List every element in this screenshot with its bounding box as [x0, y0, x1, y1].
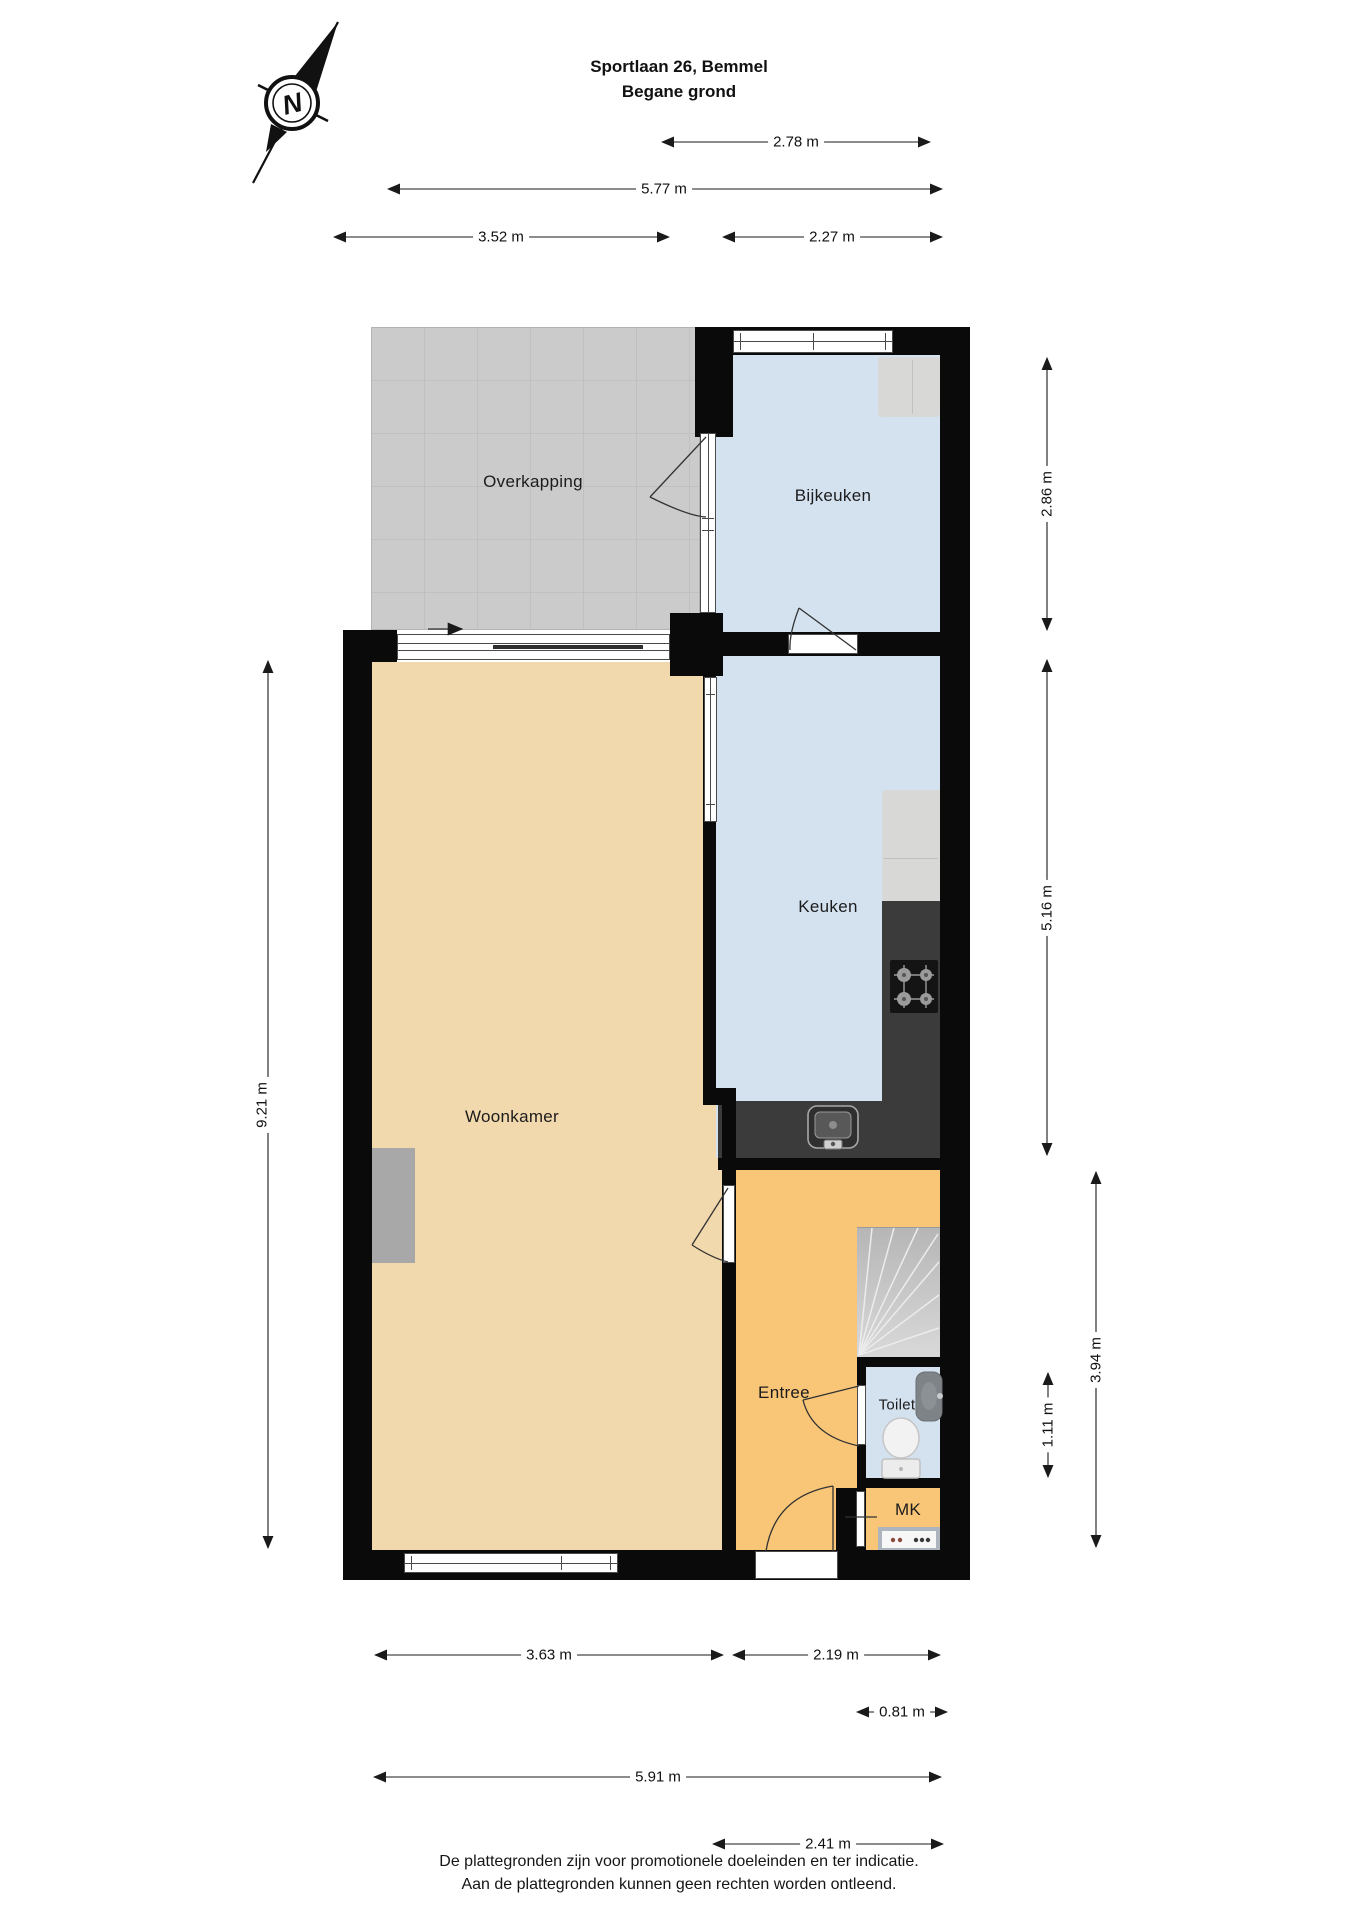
dim-label-bottom-right-width: 2.41 m [800, 1836, 856, 1853]
floorplan-sheet: Sportlaan 26, Bemmel Begane grond N [0, 0, 1358, 1920]
room-woonkamer-floor [372, 662, 722, 1550]
dim-label-mk-width: 0.81 m [874, 1704, 930, 1721]
wall-right [940, 327, 970, 1580]
dim-label-total-height: 9.21 m [254, 1077, 271, 1133]
sliding-door-woonkamer [397, 634, 670, 660]
dim-label-bijkeuken-inner: 2.27 m [804, 229, 860, 246]
room-label-overkapping: Overkapping [483, 472, 583, 492]
room-label-keuken: Keuken [798, 897, 857, 917]
wall-stairs-toilet [857, 1357, 940, 1367]
door-frame-toilet [857, 1385, 866, 1445]
meter-box [878, 1527, 940, 1552]
bijkeuken-appliance [878, 357, 940, 417]
door-frame-overkapping [700, 433, 716, 613]
door-frame-mk [856, 1491, 865, 1547]
room-label-mk: MK [895, 1500, 921, 1520]
dim-label-total-width: 5.77 m [636, 181, 692, 198]
dim-label-bijkeuken-width: 2.78 m [768, 134, 824, 151]
window-bijkeuken [733, 330, 893, 353]
wall-keuken-entree [718, 1158, 940, 1170]
room-toilet-floor [866, 1367, 940, 1478]
wall-toilet-mk [857, 1478, 940, 1488]
page-subtitle: Begane grond [0, 82, 1358, 102]
dim-label-toilet-height: 1.11 m [1040, 1398, 1057, 1453]
door-frame-bijkeuken-keuken [788, 634, 858, 654]
room-label-woonkamer: Woonkamer [465, 1107, 559, 1127]
window-keuken-interior [704, 677, 717, 822]
dim-label-entree-width: 2.19 m [808, 1647, 864, 1664]
room-label-entree: Entree [758, 1383, 810, 1403]
room-label-toilet: Toilet [879, 1397, 916, 1414]
dim-label-keuken-height: 5.16 m [1039, 880, 1056, 936]
disclaimer-line-2: Aan de plattegronden kunnen geen rechten… [0, 1876, 1358, 1894]
kitchen-counter-right [882, 901, 940, 1101]
door-frame-woonkamer [723, 1185, 735, 1263]
wall-niche [372, 1148, 415, 1263]
dim-label-bottom-total-width: 5.91 m [630, 1769, 686, 1786]
dim-label-overkapping-width: 3.52 m [473, 229, 529, 246]
wall-left [343, 630, 372, 1580]
dim-label-woonkamer-width: 3.63 m [521, 1647, 577, 1664]
kitchen-counter-bottom [718, 1101, 940, 1158]
wall-frontdoor-pier [836, 1488, 857, 1580]
disclaimer-line-1: De plattegronden zijn voor promotionele … [0, 1853, 1358, 1871]
front-door-frame [755, 1551, 838, 1579]
page-title: Sportlaan 26, Bemmel [0, 57, 1358, 77]
dim-label-bijkeuken-height: 2.86 m [1039, 466, 1056, 522]
wall-bijkeuken-left [695, 327, 733, 437]
kitchen-cabinet [882, 790, 940, 901]
window-woonkamer-bottom [404, 1553, 618, 1573]
staircase [857, 1227, 940, 1358]
compass-icon: N [210, 5, 410, 235]
room-label-bijkeuken: Bijkeuken [795, 486, 871, 506]
dim-label-hall-height: 3.94 m [1088, 1332, 1105, 1388]
